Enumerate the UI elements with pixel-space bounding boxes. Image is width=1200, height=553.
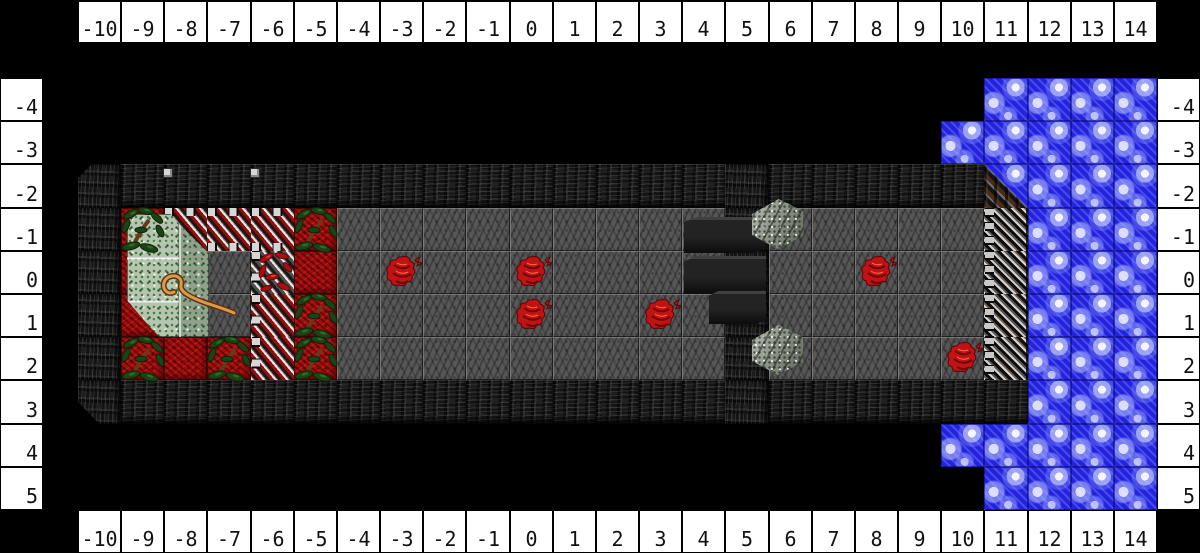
tile-stone-floor-2x0 [596, 251, 639, 294]
tile-rock-wall--7x3 [207, 380, 251, 424]
ruler-cell-col-2: 2 [596, 1, 639, 43]
ruler-cell-col--1: -1 [466, 510, 510, 553]
ruler-cell-col--2: -2 [423, 1, 466, 43]
tile-rock-wall--1x-2 [466, 164, 510, 208]
tile-water-13x-4 [1071, 78, 1114, 121]
tile-stone-floor--3x-1 [380, 208, 423, 251]
tile-rock-wall--6x3 [251, 380, 294, 424]
plant-sprite [119, 333, 167, 385]
ruler-cell-col-7: 7 [812, 510, 855, 553]
tile-water-14x0 [1114, 251, 1157, 294]
ruler-cell-row--1: -1 [1157, 208, 1200, 251]
ruler-cell-col-2: 2 [596, 510, 639, 553]
creature-sprite [942, 338, 984, 380]
tile-water-14x-3 [1114, 121, 1157, 164]
grate-post [163, 168, 173, 178]
ruler-cell-col--7: -7 [207, 1, 251, 43]
tile-rock-wall-1x3 [553, 380, 596, 424]
tile-iron-grate-horizontal--7x-1 [207, 208, 251, 251]
ruler-cell-row--4: -4 [1157, 78, 1200, 121]
ruler-cell-col-9: 9 [898, 1, 941, 43]
tile-iron-grate-east-wall-11x2 [984, 337, 1028, 380]
ruler-cell-row--1: -1 [0, 208, 43, 251]
tile-water-13x0 [1071, 251, 1114, 294]
tile-water-12x5 [1028, 467, 1071, 510]
ruler-cell-row-0: 0 [1157, 251, 1200, 294]
tile-stone-floor--4x-1 [337, 208, 380, 251]
tile-rock-wall--9x-2 [121, 164, 164, 208]
tile-stone-floor--2x-1 [423, 208, 466, 251]
tile-rock-wall--3x-2 [380, 164, 423, 208]
ruler-cell-row--3: -3 [1157, 121, 1200, 164]
tile-water-10x4 [941, 424, 984, 467]
tile-rock-wall-7x3 [812, 380, 855, 424]
grate-post [250, 168, 260, 178]
ruler-cell-col--2: -2 [423, 510, 466, 553]
tile-rock-wall-3x-2 [639, 164, 682, 208]
tile-water-14x2 [1114, 337, 1157, 380]
tile-rock-wall--10x-2 [78, 164, 121, 208]
ruler-cell-col-6: 6 [769, 510, 812, 553]
ruler-cell-col-1: 1 [553, 1, 596, 43]
ruler-cell-row-3: 3 [0, 380, 43, 424]
tile-wall-water-corner-11x-2 [984, 164, 1028, 208]
ruler-cell-col-5: 5 [725, 510, 769, 553]
tile-stone-floor-1x-1 [553, 208, 596, 251]
tile-water-13x-3 [1071, 121, 1114, 164]
tile-rock-wall--8x3 [164, 380, 207, 424]
tile-water-12x-4 [1028, 78, 1071, 121]
tile-red-carpet--8x2 [164, 337, 207, 380]
ruler-cell-col-13: 13 [1071, 1, 1114, 43]
tile-stone-floor--1x0 [466, 251, 510, 294]
tile-water-13x4 [1071, 424, 1114, 467]
tile-water-13x3 [1071, 380, 1114, 424]
ruler-cell-row-1: 1 [1157, 294, 1200, 337]
plant-sprite [292, 204, 340, 256]
tile-map-viewport: -10-9-8-7-6-5-4-3-2-10123456789101112131… [0, 0, 1200, 553]
tile-stone-floor--2x1 [423, 294, 466, 337]
ruler-cell-col-6: 6 [769, 1, 812, 43]
ruler-cell-col--7: -7 [207, 510, 251, 553]
tile-stone-floor--1x1 [466, 294, 510, 337]
tile-rock-wall--7x-2 [207, 164, 251, 208]
tile-rock-wall-0x3 [510, 380, 553, 424]
tile-stone-floor-8x-1 [855, 208, 898, 251]
tile-rock-wall-8x3 [855, 380, 898, 424]
tile-iron-grate-east-wall-11x-1 [984, 208, 1028, 251]
ruler-cell-row-3: 3 [1157, 380, 1200, 424]
tile-stone-floor-4x2 [682, 337, 725, 380]
tile-iron-grate-horizontal--6x-1 [251, 208, 294, 251]
tile-rock-wall-10x3 [941, 380, 984, 424]
tile-water-11x5 [984, 467, 1028, 510]
ruler-cell-col--8: -8 [164, 510, 207, 553]
ruler-cell-col-14: 14 [1114, 1, 1157, 43]
shadow-slab [684, 256, 766, 294]
tile-stone-floor-10x0 [941, 251, 984, 294]
tile-rock-wall--3x3 [380, 380, 423, 424]
tile-stone-floor-0x-1 [510, 208, 553, 251]
ruler-cell-col--5: -5 [294, 1, 337, 43]
tile-stone-floor-9x2 [898, 337, 941, 380]
ruler-cell-col-9: 9 [898, 510, 941, 553]
shadow-slab [709, 291, 766, 324]
ruler-cell-col-3: 3 [639, 510, 682, 553]
tile-stone-floor--3x1 [380, 294, 423, 337]
tile-water-12x1 [1028, 294, 1071, 337]
tile-stone-floor--1x2 [466, 337, 510, 380]
tile-rock-wall-10x-2 [941, 164, 984, 208]
tile-iron-grate-vertical-over-red--6x2 [251, 337, 294, 380]
tile-rock-wall-4x3 [682, 380, 725, 424]
tile-water-13x2 [1071, 337, 1114, 380]
tile-rock-wall-7x-2 [812, 164, 855, 208]
tile-rock-wall-1x-2 [553, 164, 596, 208]
tile-water-13x-2 [1071, 164, 1114, 208]
ruler-cell-col-8: 8 [855, 1, 898, 43]
plant-sprite [119, 204, 167, 256]
ruler-cell-row--4: -4 [0, 78, 43, 121]
tile-rock-wall--2x-2 [423, 164, 466, 208]
ruler-cell-col-0: 0 [510, 510, 553, 553]
tile-stone-floor--3x2 [380, 337, 423, 380]
tile-water-12x4 [1028, 424, 1071, 467]
tile-rock-wall-11x3 [984, 380, 1028, 424]
tile-rock-wall-0x-2 [510, 164, 553, 208]
ruler-cell-col--4: -4 [337, 510, 380, 553]
tile-stone-floor-7x0 [812, 251, 855, 294]
tile-rock-wall-2x3 [596, 380, 639, 424]
tile-water-13x-1 [1071, 208, 1114, 251]
tile-rock-wall-5x-2 [725, 164, 769, 208]
tile-rock-wall-6x3 [769, 380, 812, 424]
tile-stone-floor-9x0 [898, 251, 941, 294]
ruler-cell-col--6: -6 [251, 510, 294, 553]
ruler-cell-col-13: 13 [1071, 510, 1114, 553]
ruler-cell-col-0: 0 [510, 1, 553, 43]
tile-iron-grate-east-wall-11x1 [984, 294, 1028, 337]
ruler-cell-col--8: -8 [164, 1, 207, 43]
tile-water-12x-1 [1028, 208, 1071, 251]
tile-stone-floor-7x-1 [812, 208, 855, 251]
tile-stone-floor--2x0 [423, 251, 466, 294]
tile-water-12x-2 [1028, 164, 1071, 208]
creature-sprite [381, 252, 423, 294]
tile-stone-floor-3x-1 [639, 208, 682, 251]
ruler-cell-col-3: 3 [639, 1, 682, 43]
tile-rock-wall--5x3 [294, 380, 337, 424]
ruler-cell-row-2: 2 [1157, 337, 1200, 380]
tile-water-14x5 [1114, 467, 1157, 510]
ruler-cell-col--4: -4 [337, 1, 380, 43]
ruler-cell-col--10: -10 [78, 510, 121, 553]
tile-stone-floor-6x0 [769, 251, 812, 294]
tile-water-11x-3 [984, 121, 1028, 164]
ruler-cell-col-1: 1 [553, 510, 596, 553]
tile-rock-wall--10x-1 [78, 208, 121, 251]
tile-rock-wall--4x-2 [337, 164, 380, 208]
ruler-cell-row-4: 4 [0, 424, 43, 467]
tile-rock-wall-5x3 [725, 380, 769, 424]
ruler-cell-row-5: 5 [0, 467, 43, 510]
tile-stone-floor--1x-1 [466, 208, 510, 251]
plant-sprite [292, 333, 340, 385]
ruler-cell-col-11: 11 [984, 510, 1028, 553]
tile-water-13x5 [1071, 467, 1114, 510]
tile-red-carpet--5x0 [294, 251, 337, 294]
tile-water-14x-2 [1114, 164, 1157, 208]
tile-rock-wall-8x-2 [855, 164, 898, 208]
tile-stone-floor-10x1 [941, 294, 984, 337]
ruler-cell-col--1: -1 [466, 1, 510, 43]
tile-stone-floor-9x-1 [898, 208, 941, 251]
tile-stone-floor-7x1 [812, 294, 855, 337]
tile-water-13x1 [1071, 294, 1114, 337]
tile-water-14x-4 [1114, 78, 1157, 121]
tile-rock-wall-3x3 [639, 380, 682, 424]
ruler-cell-col-4: 4 [682, 1, 725, 43]
creature-sprite [511, 295, 553, 337]
ruler-cell-row--2: -2 [0, 164, 43, 208]
ruler-cell-col-5: 5 [725, 1, 769, 43]
tile-rock-wall--10x3 [78, 380, 121, 424]
ruler-cell-row-0: 0 [0, 251, 43, 294]
ruler-cell-col-7: 7 [812, 1, 855, 43]
tile-water-12x0 [1028, 251, 1071, 294]
ruler-cell-col--3: -3 [380, 510, 423, 553]
ruler-cell-row--2: -2 [1157, 164, 1200, 208]
wall-corner-rock [984, 164, 1028, 208]
tile-rock-wall-9x-2 [898, 164, 941, 208]
creature-sprite [511, 252, 553, 294]
tile-rock-wall--10x2 [78, 337, 121, 380]
ruler-cell-col-10: 10 [941, 510, 984, 553]
ruler-cell-row--3: -3 [0, 121, 43, 164]
tile-rock-wall-9x3 [898, 380, 941, 424]
ruler-cell-col-4: 4 [682, 510, 725, 553]
tile-stone-floor-7x2 [812, 337, 855, 380]
creature-sprite [640, 295, 682, 337]
tile-rock-wall--10x0 [78, 251, 121, 294]
ruler-cell-col-8: 8 [855, 510, 898, 553]
tile-stone-floor-1x1 [553, 294, 596, 337]
tile-water-10x-3 [941, 121, 984, 164]
tile-stone-floor-8x2 [855, 337, 898, 380]
ruler-cell-col-12: 12 [1028, 510, 1071, 553]
tile-stone-floor-3x0 [639, 251, 682, 294]
tile-stone-floor--4x2 [337, 337, 380, 380]
creature-sprite [856, 252, 898, 294]
ruler-cell-row-5: 5 [1157, 467, 1200, 510]
tile-rock-wall--2x3 [423, 380, 466, 424]
ruler-cell-row-2: 2 [0, 337, 43, 380]
tile-rock-wall--4x3 [337, 380, 380, 424]
ruler-cell-col--6: -6 [251, 1, 294, 43]
tile-rock-wall--9x3 [121, 380, 164, 424]
tile-water-14x-1 [1114, 208, 1157, 251]
ruler-cell-col-10: 10 [941, 1, 984, 43]
tile-water-12x2 [1028, 337, 1071, 380]
tile-stone-floor-10x-1 [941, 208, 984, 251]
cane-item [156, 270, 240, 320]
tile-rock-wall--1x3 [466, 380, 510, 424]
tile-stone-floor--4x0 [337, 251, 380, 294]
ruler-cell-col--10: -10 [78, 1, 121, 43]
tile-stone-floor-2x-1 [596, 208, 639, 251]
ruler-cell-col-11: 11 [984, 1, 1028, 43]
ruler-cell-row-4: 4 [1157, 424, 1200, 467]
ruler-cell-col-14: 14 [1114, 510, 1157, 553]
tile-rock-wall-4x-2 [682, 164, 725, 208]
tile-stone-floor-2x1 [596, 294, 639, 337]
tile-water-11x-4 [984, 78, 1028, 121]
tile-water-14x4 [1114, 424, 1157, 467]
tile-water-12x3 [1028, 380, 1071, 424]
tile-iron-grate-east-wall-11x0 [984, 251, 1028, 294]
tile-water-14x3 [1114, 380, 1157, 424]
tile-stone-floor-1x0 [553, 251, 596, 294]
ruler-cell-col-12: 12 [1028, 1, 1071, 43]
tile-water-12x-3 [1028, 121, 1071, 164]
plant-sprite [205, 333, 253, 385]
tile-rock-wall-2x-2 [596, 164, 639, 208]
ruler-cell-row-1: 1 [0, 294, 43, 337]
tile-water-11x4 [984, 424, 1028, 467]
tile-rock-wall--10x1 [78, 294, 121, 337]
tile-stone-floor-9x1 [898, 294, 941, 337]
tile-stone-floor--2x2 [423, 337, 466, 380]
tile-stone-floor-1x2 [553, 337, 596, 380]
tile-iron-grate-vertical-over-red--6x1 [251, 294, 294, 337]
ruler-cell-col--9: -9 [121, 1, 164, 43]
tile-stone-floor--4x1 [337, 294, 380, 337]
tile-stone-floor-0x2 [510, 337, 553, 380]
ruler-cell-col--9: -9 [121, 510, 164, 553]
tile-stone-floor-3x2 [639, 337, 682, 380]
tile-water-14x1 [1114, 294, 1157, 337]
ruler-cell-col--5: -5 [294, 510, 337, 553]
tile-rock-wall--5x-2 [294, 164, 337, 208]
tile-stone-floor-8x1 [855, 294, 898, 337]
tile-stone-floor-2x2 [596, 337, 639, 380]
ruler-cell-col--3: -3 [380, 1, 423, 43]
